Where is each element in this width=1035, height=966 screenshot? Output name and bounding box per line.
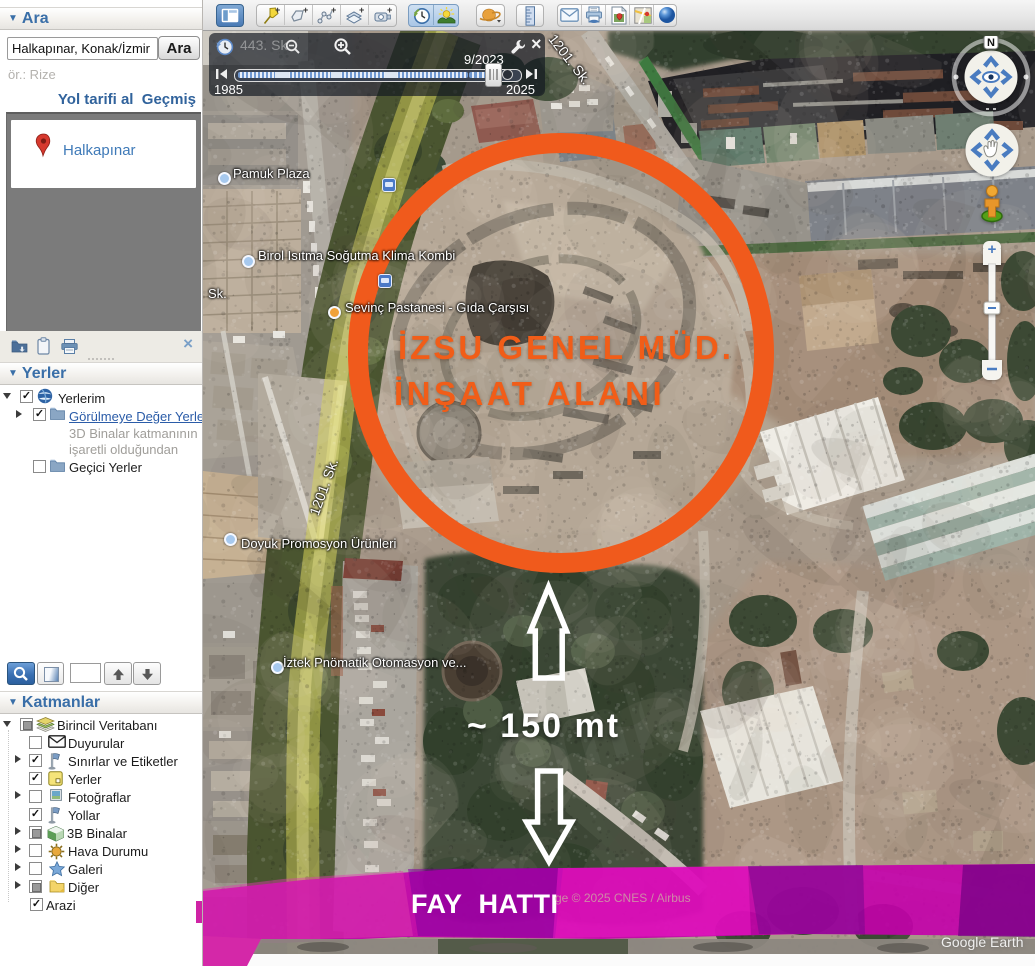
svg-text:+: +: [303, 7, 308, 15]
svg-text:+: +: [387, 7, 392, 15]
svg-text:+: +: [988, 241, 997, 258]
svg-text:N: N: [987, 37, 995, 49]
svg-text:+: +: [275, 7, 280, 15]
svg-text:+: +: [331, 7, 336, 15]
svg-text:+: +: [359, 7, 364, 15]
